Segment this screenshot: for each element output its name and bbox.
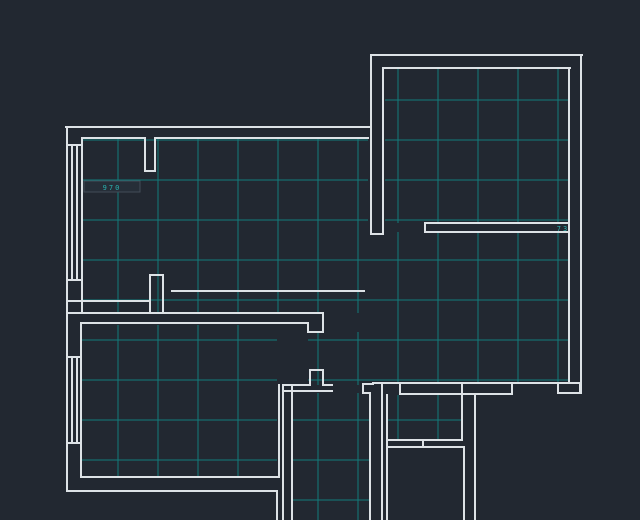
dimension-annotation: 73 bbox=[557, 225, 569, 233]
dimension-annotation-text: 73 bbox=[557, 225, 569, 233]
dimension-annotation-text: 970 bbox=[103, 184, 122, 192]
dimension-annotation: 970 bbox=[84, 181, 140, 192]
floorplan-canvas: 97073 bbox=[0, 0, 640, 520]
cad-viewport[interactable]: 97073 bbox=[0, 0, 640, 520]
